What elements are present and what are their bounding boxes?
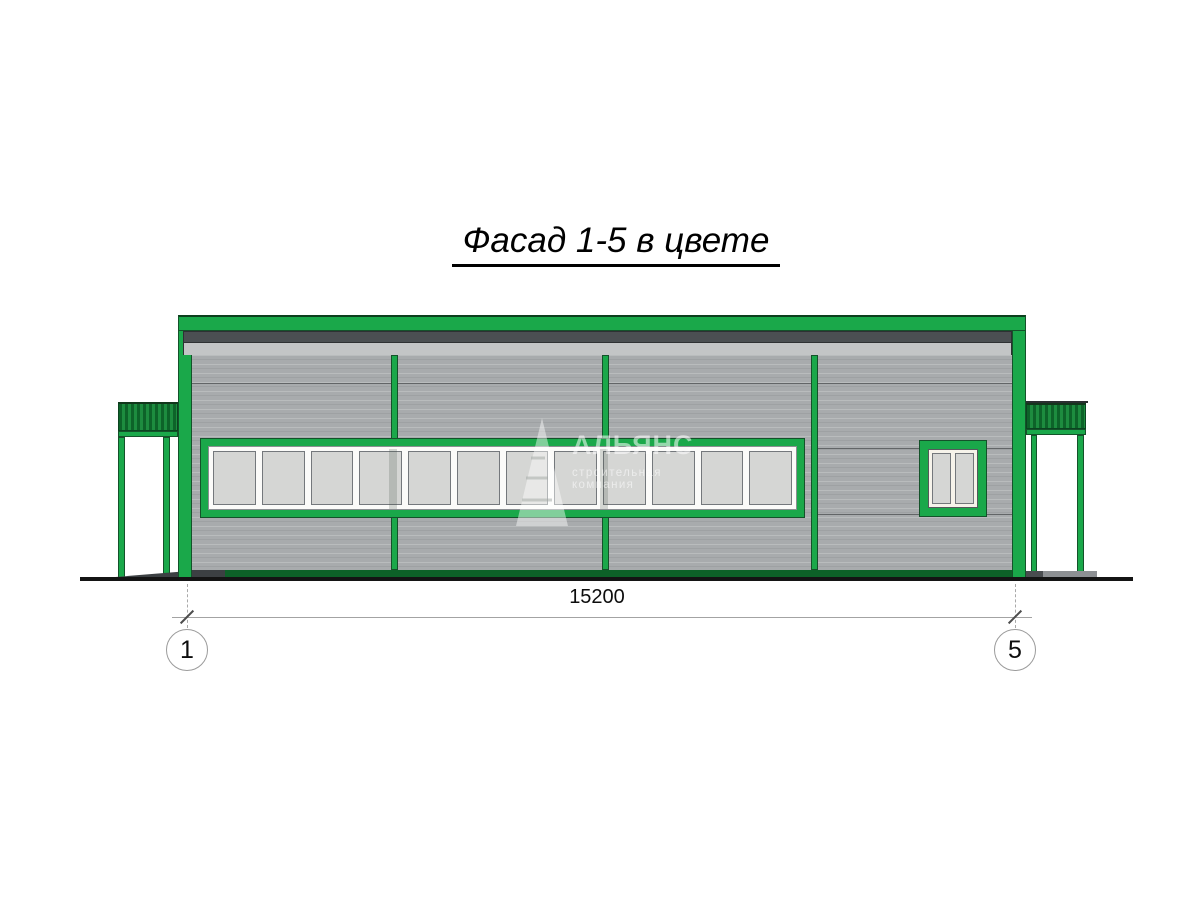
window-pane [408,451,451,505]
facade-mullion [811,355,818,570]
small-window [919,440,987,517]
extension-line-axis-5 [1015,584,1016,628]
left-canopy-fascia [118,402,178,431]
small-window-frame [928,449,978,508]
fascia-band [183,331,1012,355]
window-pane [955,453,974,504]
page-title: Фасад 1-5 в цвете [452,221,780,267]
roof-parapet-band [178,315,1026,331]
mullion-seen-through-glass [389,449,397,509]
ribbon-window-panes [213,451,792,505]
window-pane [652,451,695,505]
mullion-seen-through-glass [600,449,608,509]
right-canopy-inner-post [1031,435,1037,577]
fascia-dark-stripe [184,332,1011,342]
right-canopy-fascia [1026,403,1086,429]
window-pane [262,451,305,505]
dimension-line [172,617,1032,618]
left-canopy-inner-post [163,437,170,578]
window-pane [311,451,354,505]
window-pane [506,451,549,505]
ribbon-window-frame [208,446,797,510]
window-pane [603,451,646,505]
ground-line [80,577,1133,581]
axis-bubble-5: 5 [994,629,1036,671]
small-window-panes [932,453,974,504]
window-pane [749,451,792,505]
ribbon-window [200,438,805,518]
right-canopy-outer-post [1077,435,1084,577]
window-pane [701,451,744,505]
window-pane [554,451,597,505]
extension-line-axis-1 [187,584,188,628]
axis-bubble-1: 1 [166,629,208,671]
dimension-value: 15200 [517,586,677,609]
drawing-canvas: Фасад 1-5 в цвете [0,0,1200,900]
fascia-light-stripe [184,342,1011,355]
base-plinth-strip [192,570,1012,577]
window-pane [213,451,256,505]
window-pane [932,453,951,504]
left-canopy-outer-post [118,437,125,578]
window-pane [457,451,500,505]
column-axis-5 [1012,315,1026,578]
